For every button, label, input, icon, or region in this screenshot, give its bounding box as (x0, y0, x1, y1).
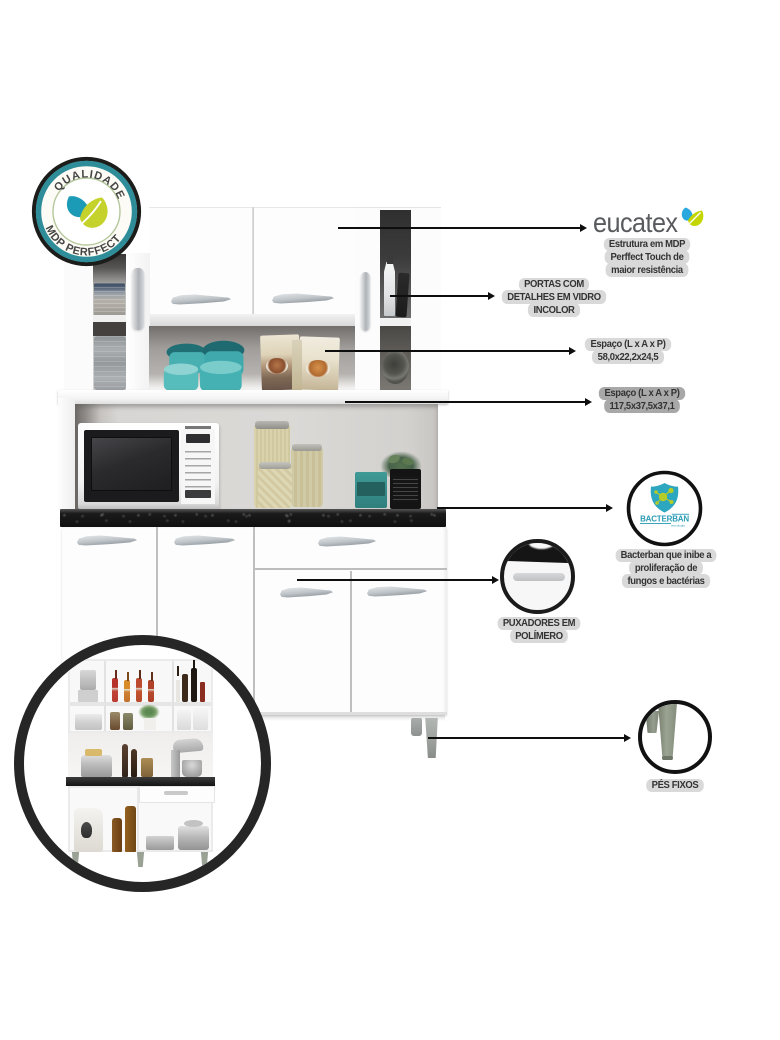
svg-text:tecnologia: tecnologia (671, 524, 685, 528)
svg-text:BACTERBAN: BACTERBAN (640, 515, 689, 524)
